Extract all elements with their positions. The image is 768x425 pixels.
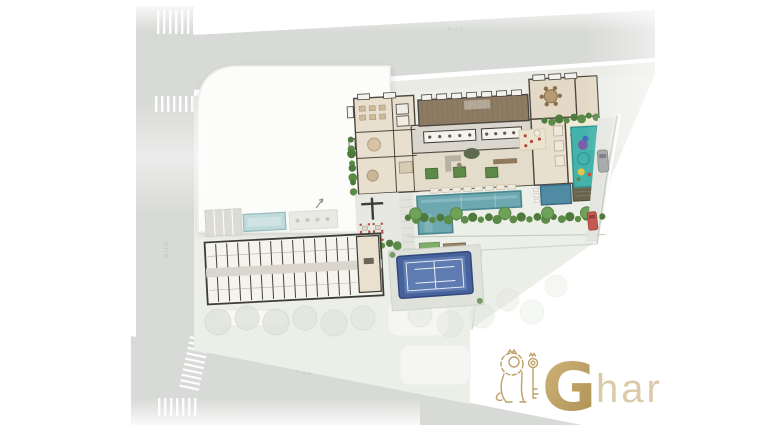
planter xyxy=(453,167,466,178)
sofa xyxy=(445,162,452,172)
pool-reflection xyxy=(247,216,281,227)
sofa xyxy=(445,155,461,162)
stall-fixtures xyxy=(553,126,564,166)
kids-pool xyxy=(540,184,571,205)
site-plan-canvas: RUA RUA RUA xyxy=(0,0,768,425)
street-label-left: RUA xyxy=(164,240,170,258)
key-icon xyxy=(529,354,539,399)
site-plan-image: RUA RUA RUA xyxy=(0,0,768,425)
parasol xyxy=(534,130,540,136)
sand-area xyxy=(519,129,546,150)
lion-icon xyxy=(496,350,526,402)
logo-text-har: har xyxy=(596,367,663,411)
sport-court-zone xyxy=(388,245,484,311)
car-red xyxy=(587,212,598,231)
planter xyxy=(425,168,438,179)
lobby-desk xyxy=(364,258,374,265)
kids-pool-chairs xyxy=(534,188,540,203)
logo-letter-g: G xyxy=(542,349,596,425)
planter xyxy=(485,167,498,178)
skylight xyxy=(464,99,490,109)
car-windshield xyxy=(589,215,595,219)
